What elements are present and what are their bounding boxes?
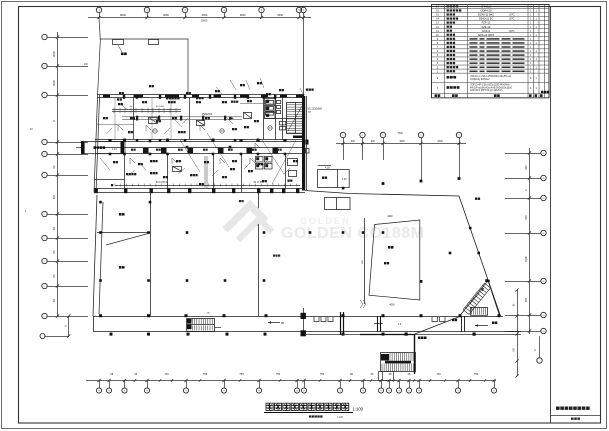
svg-text:SDS-20 360T: SDS-20 360T — [478, 33, 495, 37]
svg-text:30000: 30000 — [201, 20, 208, 23]
svg-text:GOLDEN: GOLDEN — [300, 216, 351, 226]
svg-text:750: 750 — [320, 372, 325, 376]
svg-text:60 13.65: 60 13.65 — [254, 182, 264, 184]
svg-text:GXF-6: GXF-6 — [482, 29, 490, 33]
svg-text:60 13.65 60: 60 13.65 60 — [156, 182, 169, 184]
svg-text:1800: 1800 — [399, 140, 405, 143]
svg-text:900: 900 — [524, 165, 528, 170]
svg-text:60 1450: 60 1450 — [156, 106, 165, 108]
svg-text:DZ40-11 5C: DZ40-11 5C — [479, 17, 493, 21]
svg-text:6000: 6000 — [163, 13, 169, 17]
svg-text:1.1A: 1.1A — [112, 148, 117, 151]
svg-text:1800: 1800 — [437, 140, 443, 143]
svg-text:9000: 9000 — [52, 80, 56, 86]
svg-text:GDF4-20: GDF4-20 — [480, 9, 492, 13]
svg-text:6000: 6000 — [240, 13, 246, 17]
svg-text:740: 740 — [436, 372, 441, 376]
svg-text:4000: 4000 — [387, 216, 393, 218]
svg-text:G: G — [543, 178, 545, 180]
svg-text:G: G — [543, 281, 545, 283]
svg-text:G: G — [543, 315, 545, 317]
svg-text:FZF-12: FZF-12 — [482, 21, 491, 25]
svg-text:D7C: D7C — [509, 30, 514, 33]
svg-text:4.20: 4.20 — [342, 179, 347, 181]
svg-text:GOLDEN CO188M: GOLDEN CO188M — [281, 225, 424, 242]
svg-text:7500: 7500 — [397, 132, 403, 135]
svg-text:750: 750 — [276, 372, 281, 376]
svg-text:4.20: 4.20 — [325, 167, 330, 170]
svg-text:900: 900 — [351, 140, 356, 143]
svg-text:750: 750 — [203, 372, 208, 376]
svg-text:6000: 6000 — [277, 13, 283, 17]
svg-text:DZ40-11 5#C: DZ40-11 5#C — [478, 13, 494, 17]
svg-text:G: G — [543, 233, 545, 235]
svg-text:1500: 1500 — [524, 256, 528, 262]
svg-text:x1500x3y 8W14x2: x1500x3y 8W14x2 — [470, 78, 490, 81]
svg-text:750: 750 — [474, 372, 479, 376]
svg-text:4B: 4B — [281, 322, 284, 325]
svg-text:GY40x2: GY40x2 — [481, 5, 491, 9]
svg-text:G: G — [543, 198, 545, 200]
svg-text:740: 740 — [164, 372, 169, 376]
svg-text:8000: 8000 — [120, 13, 126, 17]
svg-text:9000: 9000 — [52, 51, 56, 57]
svg-text:FZF-12: FZF-12 — [482, 25, 491, 29]
svg-text:900: 900 — [371, 140, 376, 143]
svg-text:D7C: D7C — [509, 18, 514, 21]
svg-text:750: 750 — [239, 372, 244, 376]
svg-text:G: G — [543, 153, 545, 155]
svg-text:bAFx2AT, MPT 60 (p) 4M+57/y: bAFx2AT, MPT 60 (p) 4M+57/y — [470, 89, 503, 92]
svg-text:6000: 6000 — [202, 13, 208, 17]
svg-text:900: 900 — [524, 297, 528, 302]
svg-text:900: 900 — [524, 215, 528, 220]
svg-text:4000: 4000 — [389, 305, 395, 307]
svg-text:D7C: D7C — [509, 14, 514, 17]
svg-text:900: 900 — [52, 194, 56, 199]
svg-text:1:100: 1:100 — [353, 407, 364, 412]
svg-text:1:100: 1:100 — [337, 417, 343, 419]
svg-text:M1 1200x600: M1 1200x600 — [308, 108, 323, 111]
svg-text:G: G — [543, 331, 545, 333]
